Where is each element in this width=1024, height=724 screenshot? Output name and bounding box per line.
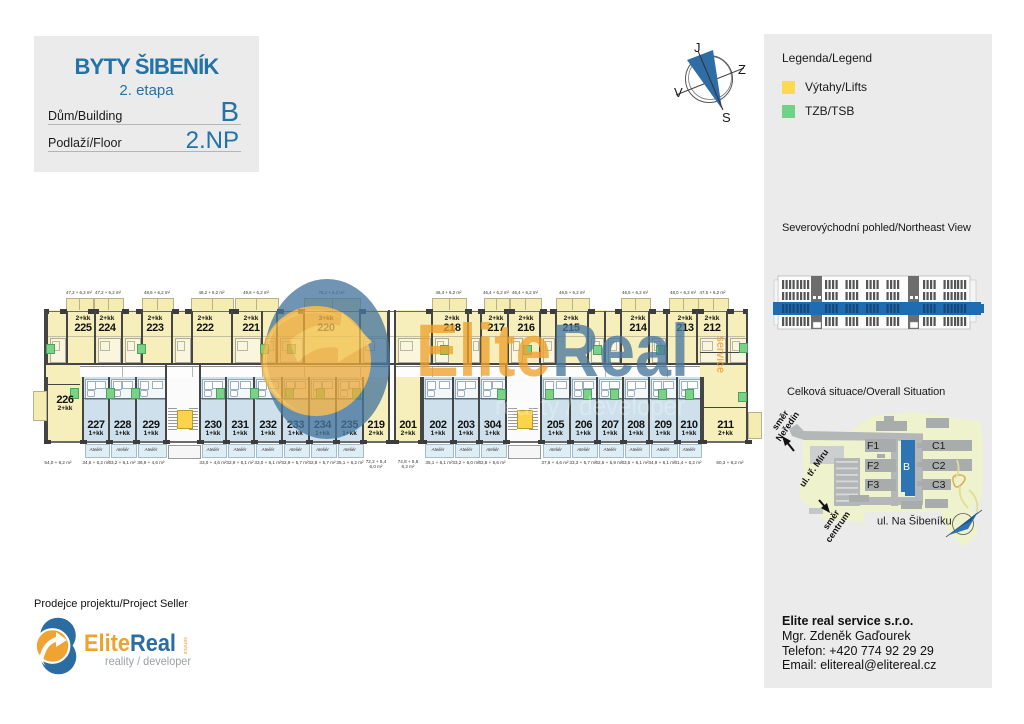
svg-text:service: service bbox=[714, 336, 728, 373]
svg-text:Real: Real bbox=[552, 309, 689, 392]
svg-text:Elite: Elite bbox=[416, 309, 551, 392]
svg-text:reality / developer: reality / developer bbox=[495, 391, 685, 421]
